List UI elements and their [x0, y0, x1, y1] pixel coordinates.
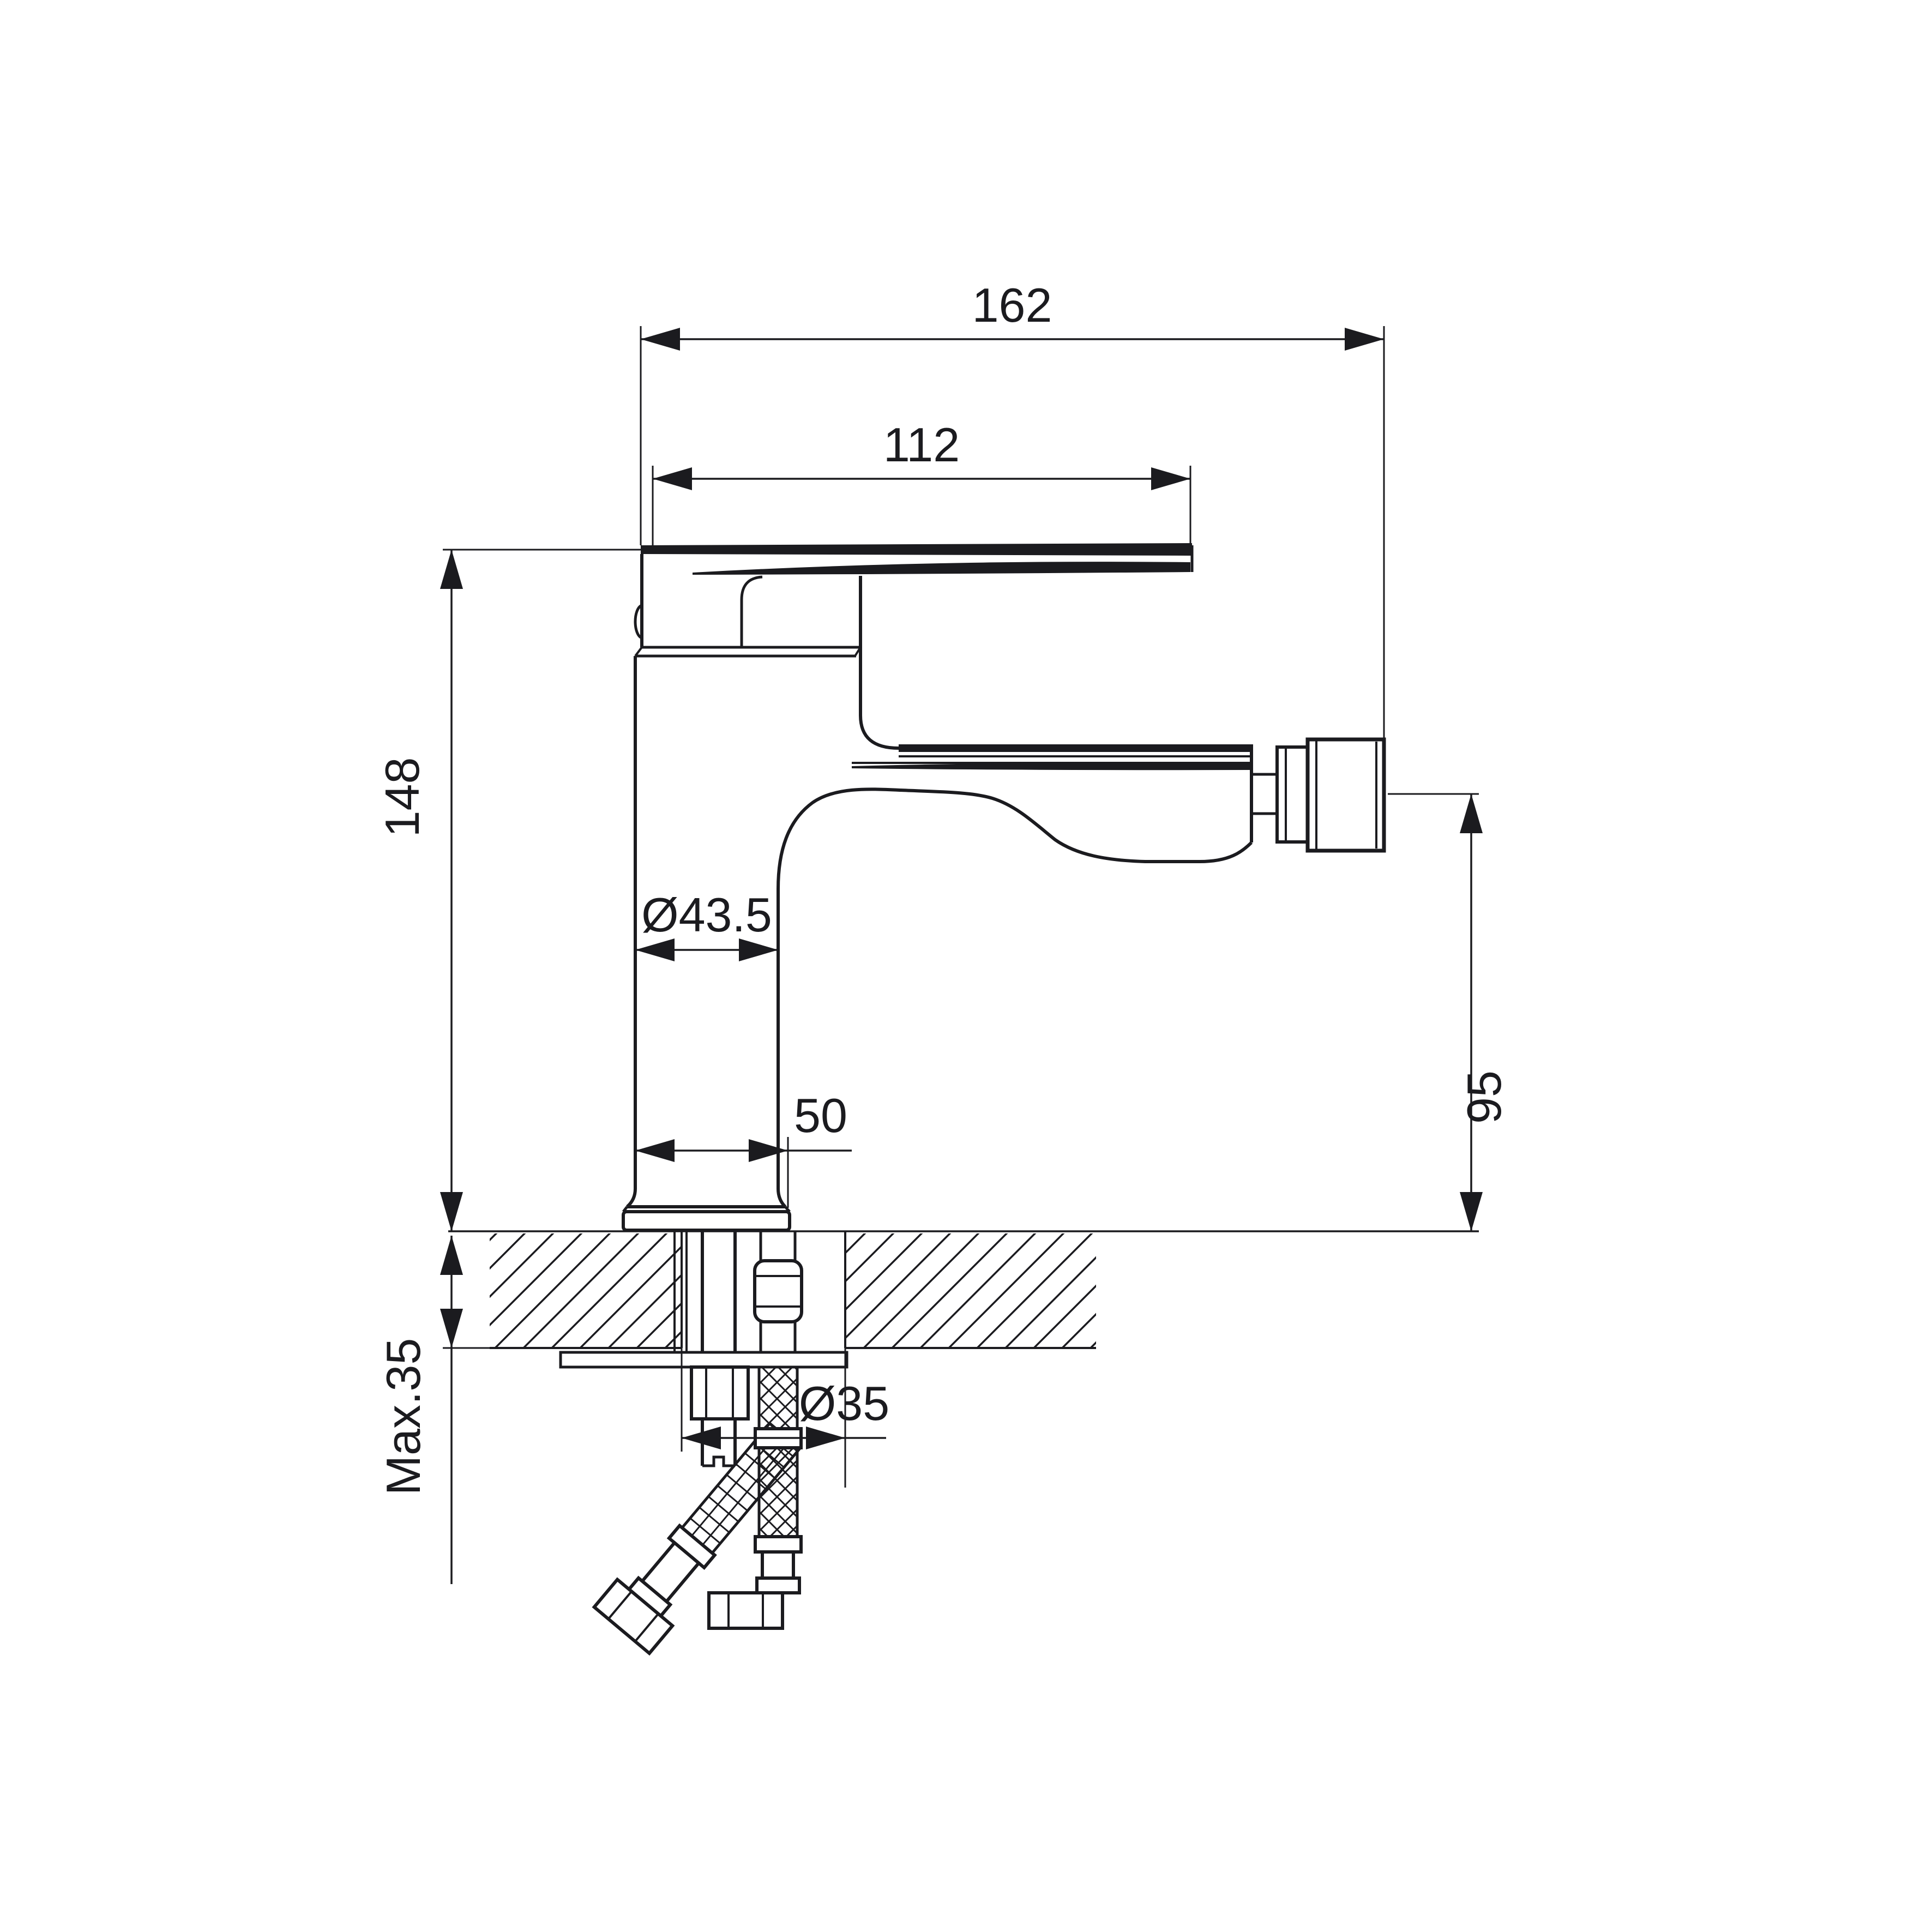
hose-hex-nut-end	[709, 1593, 783, 1628]
arrow-43-right	[739, 938, 778, 961]
stud-slot	[702, 1457, 735, 1466]
arrow-112-right	[1151, 467, 1190, 490]
aerator-body	[1308, 739, 1384, 851]
arrow-95-bottom	[1460, 1192, 1483, 1231]
label-handle-length: 112	[883, 418, 960, 472]
countertop-section	[448, 1231, 1479, 1348]
hose-ring-end	[757, 1578, 799, 1593]
label-spout-height: 95	[1457, 1070, 1511, 1124]
base-plate	[623, 1212, 790, 1230]
arrow-148-bottom	[440, 1192, 463, 1231]
arrow-43-left	[635, 938, 675, 961]
arrow-50-left	[635, 1139, 675, 1162]
dimension-overall-length: 162	[641, 278, 1384, 738]
technical-drawing-bidet-mixer: 162 112 148 Ø43.5	[0, 0, 1932, 1932]
nozzle-neck	[1251, 774, 1277, 814]
handle-blade-top	[641, 543, 1192, 556]
dimension-deck-thickness: Max.35	[376, 1236, 491, 1584]
dimension-body-diameter: Ø43.5	[635, 888, 778, 961]
hose-ferrule-lower	[755, 1537, 801, 1552]
counter-hatch-left	[490, 1233, 682, 1347]
hose-tail-upper	[761, 1231, 795, 1261]
label-body-diameter: Ø43.5	[641, 888, 772, 942]
counter-hatch-right	[845, 1233, 1096, 1347]
arrow-162-right	[1345, 328, 1384, 351]
hose-braid-upper	[759, 1367, 797, 1429]
fixing-washer-plate	[561, 1352, 847, 1367]
fixing-nut	[691, 1367, 748, 1419]
nozzle-connector-ring	[1277, 747, 1308, 842]
spout-neck-edge	[860, 576, 899, 748]
arrow-95-top	[1460, 794, 1483, 833]
label-base-width: 50	[794, 1088, 847, 1142]
hose-connector-barrel	[755, 1261, 802, 1322]
aerator-detail-lines	[1316, 739, 1376, 851]
dimension-spout-height: 95	[1388, 794, 1511, 1231]
hose-tail-lower	[761, 1322, 795, 1352]
hose-braid-lower	[759, 1448, 797, 1537]
arrow-162-left	[641, 328, 680, 351]
arrow-max35-bottom	[440, 1309, 463, 1348]
arrow-max35-top	[440, 1236, 463, 1275]
dimensions: 162 112 148 Ø43.5	[375, 278, 1511, 1584]
riser-left-edge	[627, 656, 635, 1207]
riser-and-spout-underside	[778, 789, 1251, 1207]
faucet-body	[623, 543, 1384, 1230]
dimension-handle-length: 112	[653, 418, 1190, 545]
arrow-148-top	[440, 550, 463, 589]
dimension-base-width: 50	[635, 1088, 852, 1208]
drawing-sheet: 162 112 148 Ø43.5	[0, 0, 1932, 1932]
label-hole-diameter: Ø35	[799, 1376, 889, 1430]
extension-lines-162	[641, 326, 1384, 738]
dimension-body-height: 148	[375, 550, 641, 1231]
arrow-50-right	[749, 1139, 788, 1162]
extension-lines-112	[653, 466, 1190, 545]
housing-right-edge	[742, 577, 762, 647]
label-body-height: 148	[375, 757, 429, 838]
threaded-shank	[702, 1231, 735, 1366]
arrow-112-left	[653, 467, 692, 490]
label-deck-thickness: Max.35	[376, 1338, 430, 1496]
label-overall-length: 162	[972, 278, 1052, 332]
handle-blade-underside	[693, 562, 1190, 575]
hose-tube-end	[762, 1552, 793, 1578]
